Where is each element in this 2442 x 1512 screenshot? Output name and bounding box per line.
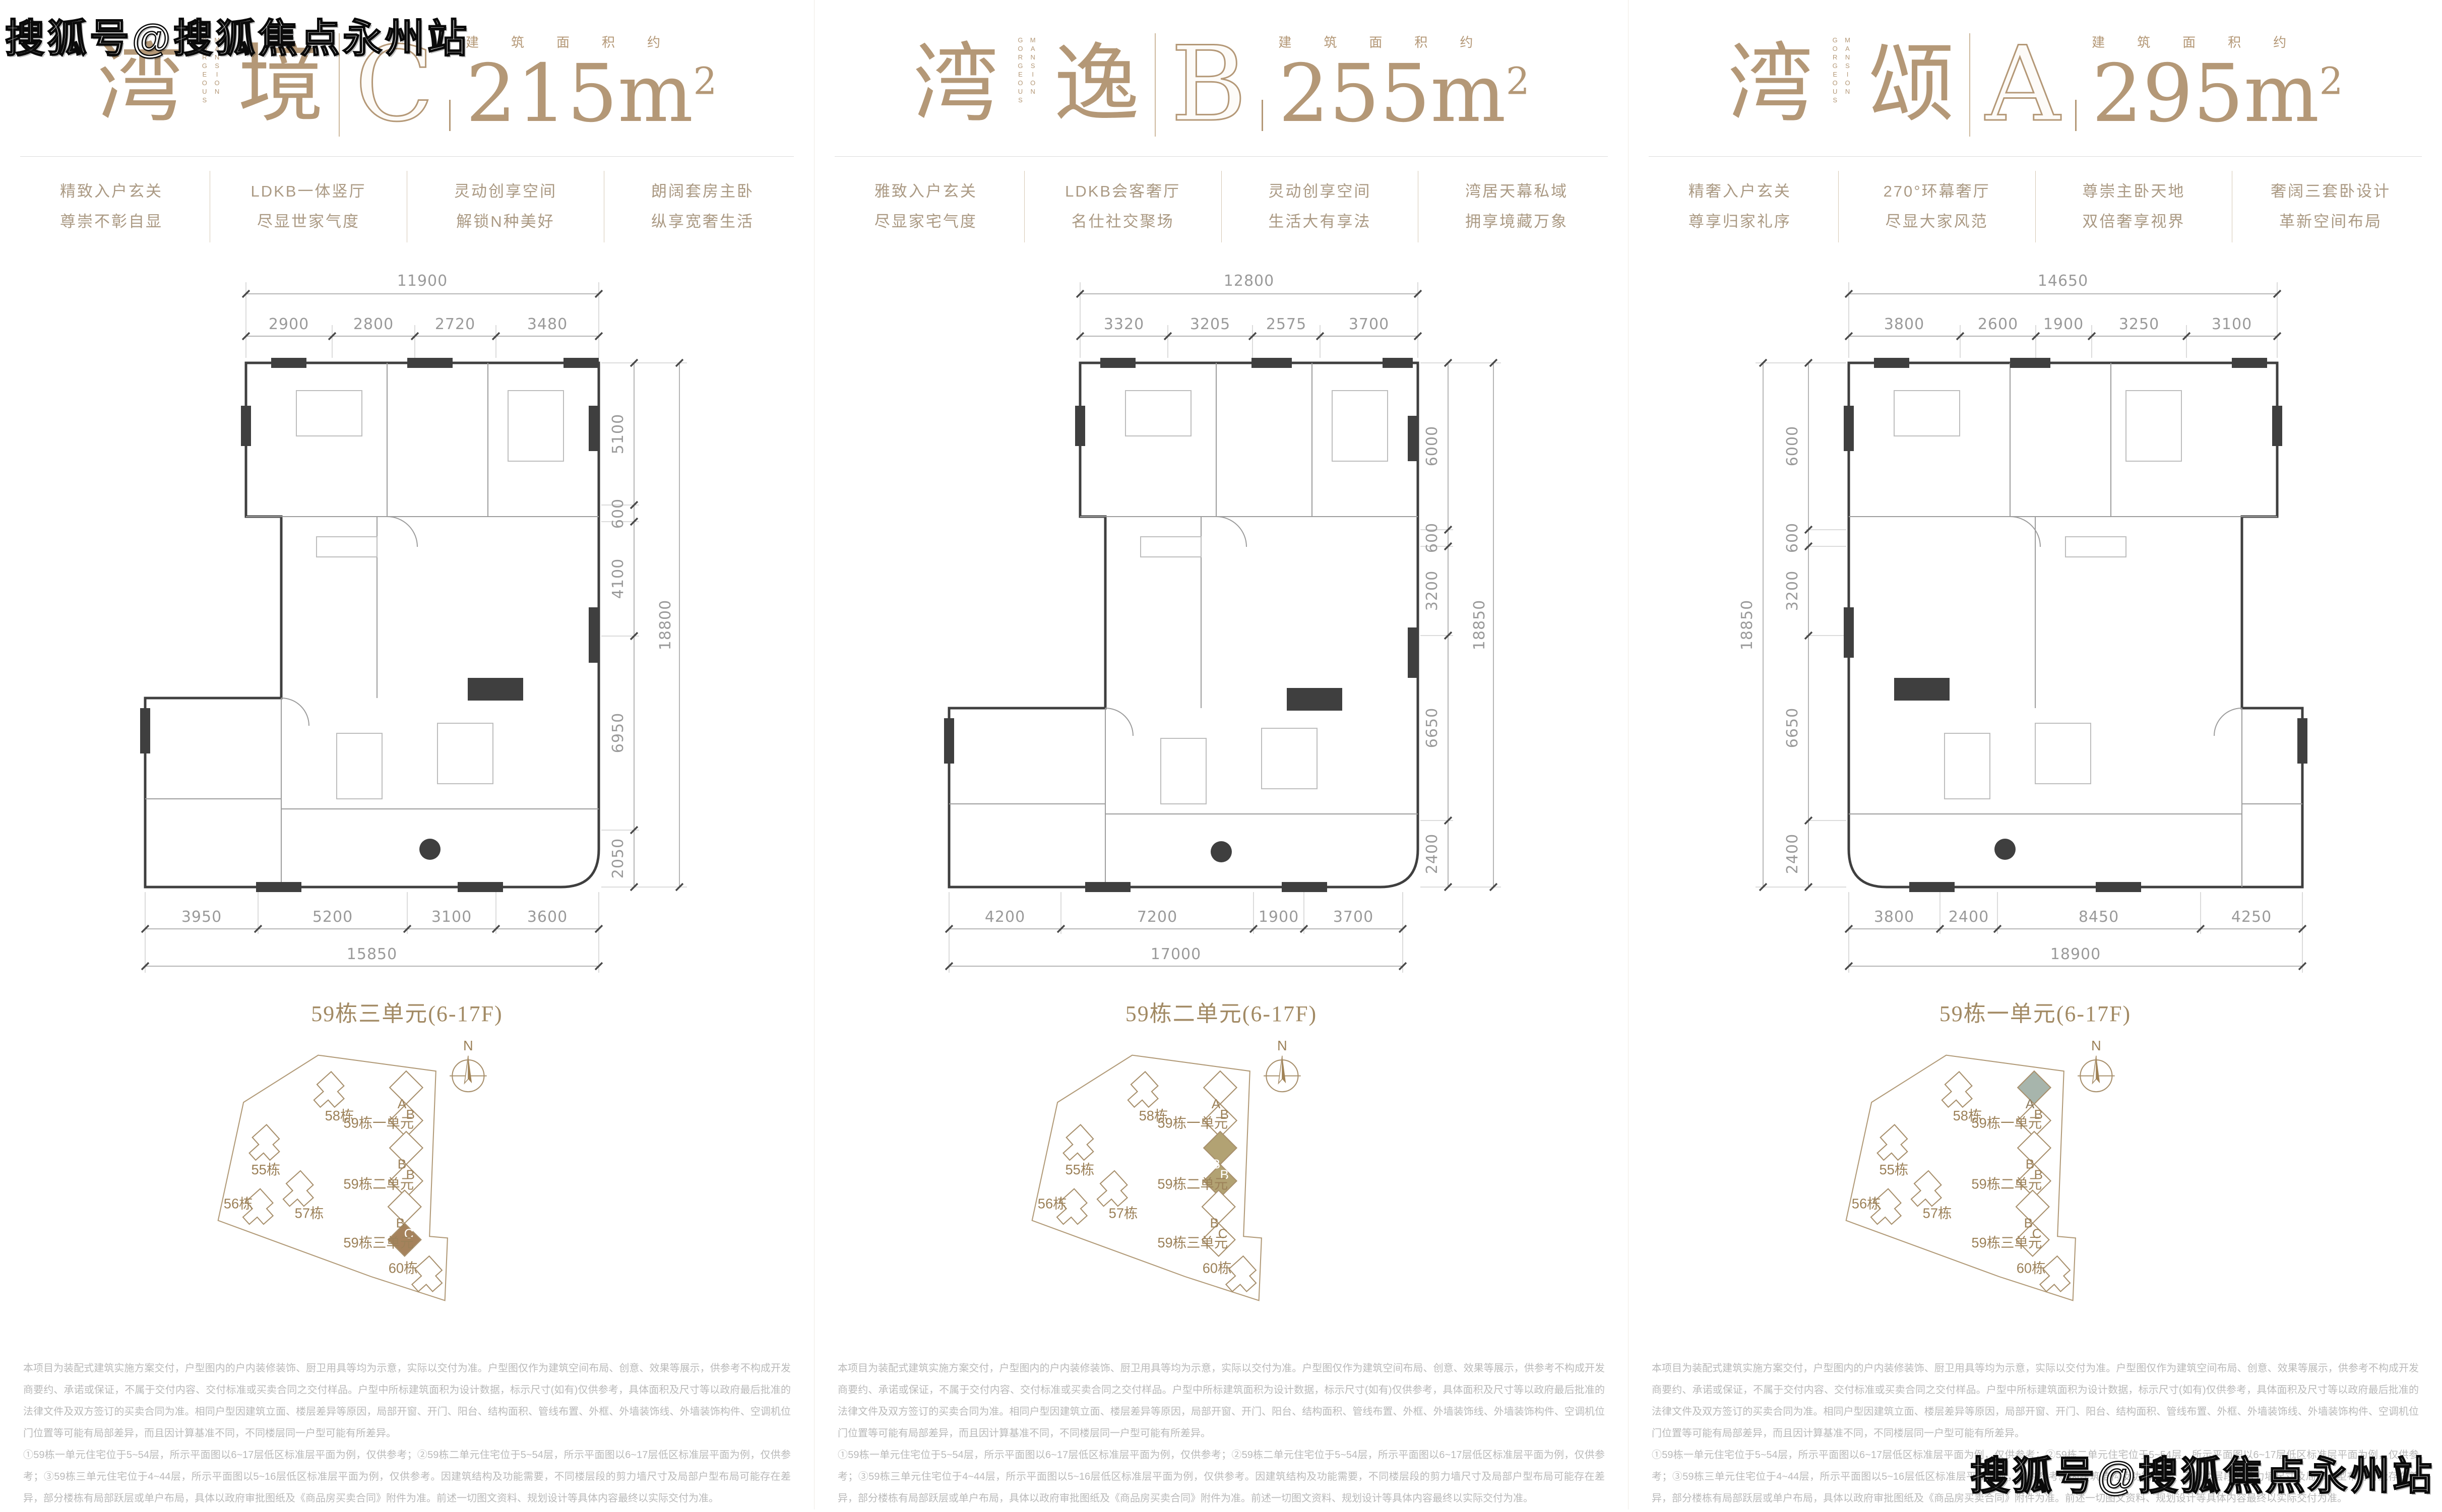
feature-item: 朗阔套房主卧纵享宽奢生活 — [604, 176, 801, 237]
area-value: 215m2 — [466, 51, 717, 137]
building-label: 59栋一单元 — [1971, 1115, 2042, 1131]
building-label: 59栋二单元 — [1971, 1176, 2042, 1192]
dim-label: 3480 — [527, 316, 567, 333]
dim-bottom-total: 15850 — [346, 946, 397, 963]
dim-label: 2900 — [268, 316, 308, 333]
watermark-bottom: 搜狐号@搜狐焦点永州站 — [1970, 1444, 2435, 1501]
dim-label: 2050 — [609, 838, 627, 878]
site-plan: N 58栋 55栋 57栋 56栋 60栋 A B 59栋一单元 B — [1829, 1040, 2242, 1337]
site-plan: N 58栋 55栋 57栋 56栋 60栋 A B 59栋一单元 B — [201, 1040, 614, 1337]
dim-label: 3700 — [1349, 316, 1389, 333]
building-label: 59栋一单元 — [343, 1115, 414, 1131]
dim-label: 4200 — [985, 908, 1025, 926]
building-label: 59栋三单元 — [1157, 1235, 1228, 1250]
dim-label: 3205 — [1190, 316, 1230, 333]
dim-label: 2400 — [1949, 908, 1989, 926]
unit-letter: B — [397, 1157, 406, 1172]
dim-bottom-total: 18900 — [2050, 946, 2101, 963]
dim-label: 6000 — [1784, 426, 1801, 466]
compass-icon: N — [2078, 1040, 2115, 1092]
feature-item: 精致入户玄关尊崇不彰自显 — [13, 176, 210, 237]
feature-item: 灵动创享空间解锁N种美好 — [407, 176, 604, 237]
building-55 — [1057, 1125, 1100, 1167]
building-label: 55栋 — [251, 1162, 280, 1177]
apartment-outline — [140, 358, 599, 892]
dim-label: 6950 — [609, 713, 627, 753]
building-label: 60栋 — [388, 1261, 417, 1276]
dim-label: 3200 — [1784, 571, 1801, 611]
dim-label: 3800 — [1874, 908, 1914, 926]
feature-item: 尊崇主卧天地双倍奢享视界 — [2036, 176, 2232, 237]
panel-wanyi-b: 湾 GORGEOUS MANSION 逸 B 建筑面积约 255m2 雅致入户玄… — [814, 0, 1628, 1509]
compass-n: N — [463, 1040, 473, 1053]
title-en-line2: MANSION — [1027, 36, 1038, 96]
building-label: 56栋 — [1852, 1195, 1881, 1211]
title-en-line1: GORGEOUS — [1829, 36, 1840, 105]
dim-label: 2400 — [1784, 834, 1801, 874]
watermark-top: 搜狐号@搜狐焦点永州站 — [5, 7, 470, 64]
building-label: 60栋 — [2017, 1261, 2046, 1276]
dim-label: 2720 — [434, 316, 475, 333]
dim-side-total: 18850 — [1471, 600, 1488, 650]
compass-icon: N — [450, 1040, 487, 1092]
building-label: 56栋 — [223, 1195, 253, 1211]
compass-n: N — [2091, 1040, 2101, 1053]
title-char: 逸 — [1054, 42, 1140, 128]
site-plan: N 58栋 55栋 57栋 56栋 60栋 A B 59栋一单元 B — [1015, 1040, 1428, 1337]
dim-bottom-total: 17000 — [1151, 946, 1201, 963]
dim-label: 3800 — [1884, 316, 1924, 333]
building-label: 59栋二单元 — [1157, 1176, 1228, 1192]
area-block: 建筑面积约 215m2 — [466, 32, 717, 137]
building-label: 59栋二单元 — [343, 1176, 414, 1192]
dim-label: 5100 — [609, 414, 627, 454]
building-55 — [242, 1125, 285, 1167]
apartment-outline — [1844, 358, 2307, 892]
dim-label: 3100 — [431, 908, 471, 926]
unit-label: 59栋一单元(6-17F) — [1629, 995, 2442, 1028]
compass-icon: N — [1264, 1040, 1301, 1092]
panel-title: 湾 GORGEOUS MANSION 逸 B 建筑面积约 255m2 — [815, 21, 1628, 148]
title-english-vertical: GORGEOUS MANSION — [1828, 36, 1853, 106]
unit-label: 59栋二单元(6-17F) — [815, 995, 1628, 1028]
title-char: 湾 — [913, 42, 998, 128]
dim-label: 7200 — [1137, 908, 1177, 926]
area-value: 255m2 — [1278, 51, 1530, 137]
feature-item: 雅致入户玄关尽显家宅气度 — [828, 176, 1024, 237]
area-block: 建筑面积约 295m2 — [2092, 32, 2343, 137]
title-char: 颂 — [1868, 42, 1954, 128]
building-label: 56栋 — [1038, 1195, 1067, 1211]
dim-label: 600 — [1784, 523, 1801, 553]
floor-plan-drawing: 14650 3800 2600 1900 3250 3100 6000 600 … — [1682, 255, 2388, 985]
brochure-page: 湾 GORGEOUS MANSION 境 C 建筑面积约 215m2 精致入户玄… — [0, 0, 2442, 1509]
dim-label: 2575 — [1266, 316, 1306, 333]
title-divider-small — [449, 100, 451, 131]
unit-type-letter: B — [1171, 33, 1247, 137]
unit-letter-highlighted: A — [2026, 1096, 2035, 1111]
feature-row: 雅致入户玄关尽显家宅气度 LDKB会客奢厅名仕社交聚场 灵动创享空间生活大有享法… — [828, 171, 1615, 242]
disclaimer-text: 本项目为装配式建筑实施方案交付，户型图内的户内装修装饰、厨卫用具等均为示意，实际… — [23, 1358, 791, 1509]
dim-label: 2600 — [1978, 316, 2018, 333]
panel-title: 湾 GORGEOUS MANSION 颂 A 建筑面积约 295m2 — [1629, 21, 2442, 148]
unit-letter: B — [396, 1215, 405, 1230]
feature-item: 270°环幕奢厅尽显大家风范 — [1839, 176, 2035, 237]
dim-label: 6650 — [1784, 708, 1801, 748]
title-divider-small — [2075, 100, 2077, 131]
dim-top-total: 12800 — [1224, 272, 1274, 290]
dim-label: 3200 — [1423, 571, 1441, 611]
title-rule — [835, 156, 1608, 157]
panel-wansong-a: 湾 GORGEOUS MANSION 颂 A 建筑面积约 295m2 精奢入户玄… — [1628, 0, 2442, 1509]
unit-label: 59栋三单元(6-17F) — [0, 995, 814, 1028]
dim-label: 3700 — [1333, 908, 1373, 926]
title-en-line2: MANSION — [1842, 36, 1852, 96]
building-label: 55栋 — [1065, 1162, 1094, 1177]
dim-label: 3250 — [2119, 316, 2159, 333]
dim-top-total: 11900 — [397, 272, 447, 290]
dim-label: 5200 — [312, 908, 352, 926]
title-divider-small — [1262, 100, 1263, 131]
building-label: 60栋 — [1203, 1261, 1232, 1276]
building-label: 59栋一单元 — [1157, 1115, 1228, 1131]
title-english-vertical: GORGEOUS MANSION — [1014, 36, 1039, 106]
dim-label: 3950 — [181, 908, 221, 926]
feature-item: 精奢入户玄关尊享归家礼序 — [1642, 176, 1838, 237]
floor-plan-drawing: 12800 3320 3205 2575 3700 6000 600 3200 … — [868, 255, 1574, 985]
feature-row: 精致入户玄关尊崇不彰自显 LDKB一体竖厅尽显世家气度 灵动创享空间解锁N种美好… — [13, 171, 801, 242]
feature-item: LDKB一体竖厅尽显世家气度 — [210, 176, 407, 237]
dim-label: 3320 — [1104, 316, 1144, 333]
dim-top-total: 14650 — [2038, 272, 2088, 290]
disclaimer-text: 本项目为装配式建筑实施方案交付，户型图内的户内装修装饰、厨卫用具等均为示意，实际… — [838, 1358, 1605, 1509]
dim-label: 3600 — [527, 908, 567, 926]
unit-letter: A — [1212, 1096, 1221, 1111]
building-label: 55栋 — [1879, 1162, 1908, 1177]
dim-label: 600 — [1423, 523, 1441, 553]
apartment-outline — [944, 358, 1418, 892]
building-label: 57栋 — [1109, 1205, 1138, 1221]
dim-side-total: 18850 — [1738, 600, 1756, 650]
dim-label: 6650 — [1423, 708, 1441, 748]
dim-label: 4250 — [2231, 908, 2272, 926]
dim-label: 600 — [609, 498, 627, 529]
feature-item: LDKB会客奢厅名仕社交聚场 — [1025, 176, 1221, 237]
dim-side-total: 18800 — [657, 600, 674, 650]
unit-type-letter: A — [1985, 33, 2060, 137]
building-label: 59栋三单元 — [1971, 1235, 2042, 1250]
compass-n: N — [1277, 1040, 1287, 1053]
title-rule — [1649, 156, 2422, 157]
building-label: 57栋 — [1923, 1205, 1952, 1221]
title-divider — [1155, 33, 1156, 137]
feature-row: 精奢入户玄关尊享归家礼序 270°环幕奢厅尽显大家风范 尊崇主卧天地双倍奢享视界… — [1642, 171, 2429, 242]
title-en-line1: GORGEOUS — [1015, 36, 1025, 105]
unit-letter: B — [2026, 1157, 2035, 1172]
building-label: 59栋三单元 — [343, 1235, 414, 1250]
unit-letter: B — [1210, 1215, 1219, 1230]
dim-label: 4100 — [609, 558, 627, 599]
dim-label: 3100 — [2212, 316, 2252, 333]
floor-plan-drawing: 11900 2900 2800 2720 3480 5100 600 4100 … — [54, 255, 760, 985]
area-block: 建筑面积约 255m2 — [1278, 32, 1530, 137]
feature-item: 灵动创享空间生活大有享法 — [1222, 176, 1418, 237]
dim-label: 2400 — [1423, 834, 1441, 874]
plan-column-dot — [419, 839, 441, 860]
unit-letter-highlighted: B — [1212, 1157, 1221, 1172]
dim-label: 2800 — [353, 316, 393, 333]
area-value: 295m2 — [2092, 51, 2343, 137]
feature-item: 奢阔三套卧设计革新空间布局 — [2232, 176, 2429, 237]
unit-letter: B — [2024, 1215, 2033, 1230]
plan-column-dot — [1211, 841, 1232, 862]
feature-item: 湾居天幕私域拥享境藏万象 — [1418, 176, 1615, 237]
plan-column-dot — [1994, 839, 2016, 860]
dim-label: 6000 — [1423, 426, 1441, 466]
dim-label: 1900 — [2043, 316, 2084, 333]
title-char: 湾 — [1727, 42, 1813, 128]
unit-letter: A — [397, 1096, 406, 1111]
title-rule — [20, 156, 794, 157]
title-divider — [1969, 33, 1970, 137]
dim-label: 8450 — [2079, 908, 2119, 926]
panel-wanjing-c: 湾 GORGEOUS MANSION 境 C 建筑面积约 215m2 精致入户玄… — [0, 0, 814, 1509]
dim-label: 1900 — [1259, 908, 1299, 926]
building-label: 57栋 — [294, 1205, 324, 1221]
building-55 — [1871, 1125, 1914, 1167]
